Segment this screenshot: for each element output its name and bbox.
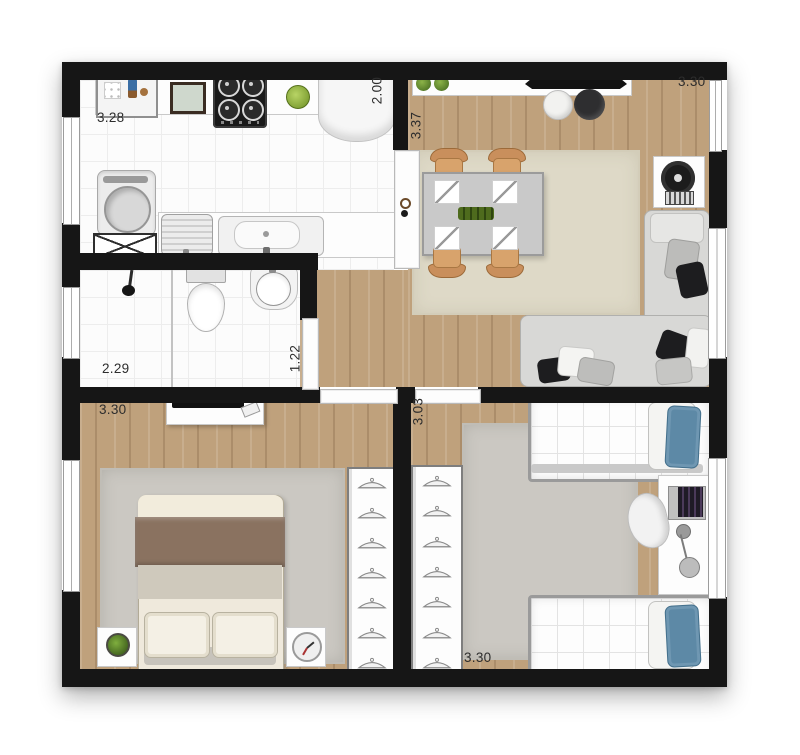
wall-bedrooms-top: [478, 387, 727, 403]
pillow-blue: [664, 604, 701, 668]
wardrobe-second-bedroom: [411, 465, 463, 681]
dim-living-depth: 3.37: [409, 107, 424, 145]
wall: [709, 357, 727, 458]
fan-hub: [674, 174, 682, 182]
fruit-bowl-icon: [286, 85, 310, 109]
small-bowl: [140, 88, 148, 96]
hangers-icon: [413, 467, 461, 679]
door-kitchen-living: [394, 150, 420, 269]
microwave-icon: [170, 82, 206, 114]
wall-bathroom-top: [62, 253, 318, 270]
hangers-icon: [349, 469, 395, 679]
washer-control-panel: [103, 176, 148, 183]
dim-bathroom-width: 2.29: [102, 361, 129, 376]
place-setting: [434, 226, 460, 250]
dish-rack-icon: [104, 82, 121, 99]
wardrobe-main-bedroom: [347, 467, 397, 681]
window-kitchen: [63, 117, 80, 225]
wall-bathroom-right: [300, 253, 317, 320]
dining-chair: [487, 248, 525, 278]
wall-bedroom-divider: [393, 395, 411, 669]
cushion-gray: [655, 356, 694, 386]
lamp-base: [679, 557, 700, 578]
shower-head-icon: [122, 285, 135, 296]
cooktop-knobs: [221, 121, 259, 124]
bed-blanket-beige: [138, 565, 282, 599]
dim-second-bedroom-width: 3.30: [464, 650, 491, 665]
door-handle-icon: [400, 198, 411, 209]
pouf-white: [543, 90, 573, 120]
wall-kitchen-living: [393, 62, 408, 150]
table-centerpiece: [458, 207, 494, 220]
washer-lid: [104, 186, 151, 233]
wall: [709, 150, 727, 228]
lamp-shade: [676, 524, 691, 539]
wall: [62, 590, 80, 687]
window-main-bedroom: [63, 460, 80, 592]
fan-base: [665, 191, 694, 205]
window-bathroom: [63, 287, 80, 359]
door-handle-icon: [401, 210, 408, 217]
dim-kitchen-width: 3.28: [97, 110, 124, 125]
floor-plan: 3.28 2.00 3.37 3.30 2.29 1.22 3.30 3.03 …: [0, 0, 800, 755]
pouf-black: [574, 89, 605, 120]
wall: [62, 357, 80, 460]
dim-main-bedroom-width: 3.30: [99, 402, 126, 417]
wall: [62, 62, 80, 117]
wall-bedrooms-top: [62, 387, 320, 403]
bed-pillow: [144, 612, 210, 658]
door-bathroom: [302, 318, 319, 390]
plant-icon: [106, 633, 130, 657]
wall: [709, 597, 727, 687]
dim-kitchen-depth: 2.00: [370, 72, 385, 110]
bed-pillow: [212, 612, 278, 658]
dining-chair: [429, 248, 467, 278]
window-living: [708, 228, 726, 359]
wall: [62, 669, 727, 687]
shower-glass-partition: [171, 270, 173, 387]
window-second-bedroom: [708, 458, 726, 599]
dim-bathroom-depth: 1.22: [288, 340, 303, 378]
sink-drain: [263, 231, 269, 237]
detergent-bottle: [128, 79, 137, 98]
dim-second-bedroom-depth: 3.03: [411, 393, 426, 431]
toilet-tank: [186, 268, 226, 283]
place-setting: [492, 226, 518, 250]
place-setting: [492, 180, 518, 204]
place-setting: [434, 180, 460, 204]
laptop-screen: [678, 487, 703, 517]
pillow-blue: [664, 405, 701, 469]
washbasin-icon: [256, 272, 291, 306]
clock-icon: [292, 632, 322, 662]
window-living-top: [709, 80, 722, 152]
door-main-bedroom: [320, 389, 398, 404]
bed-blanket-brown: [135, 517, 285, 567]
dim-living-width: 3.30: [678, 74, 705, 89]
